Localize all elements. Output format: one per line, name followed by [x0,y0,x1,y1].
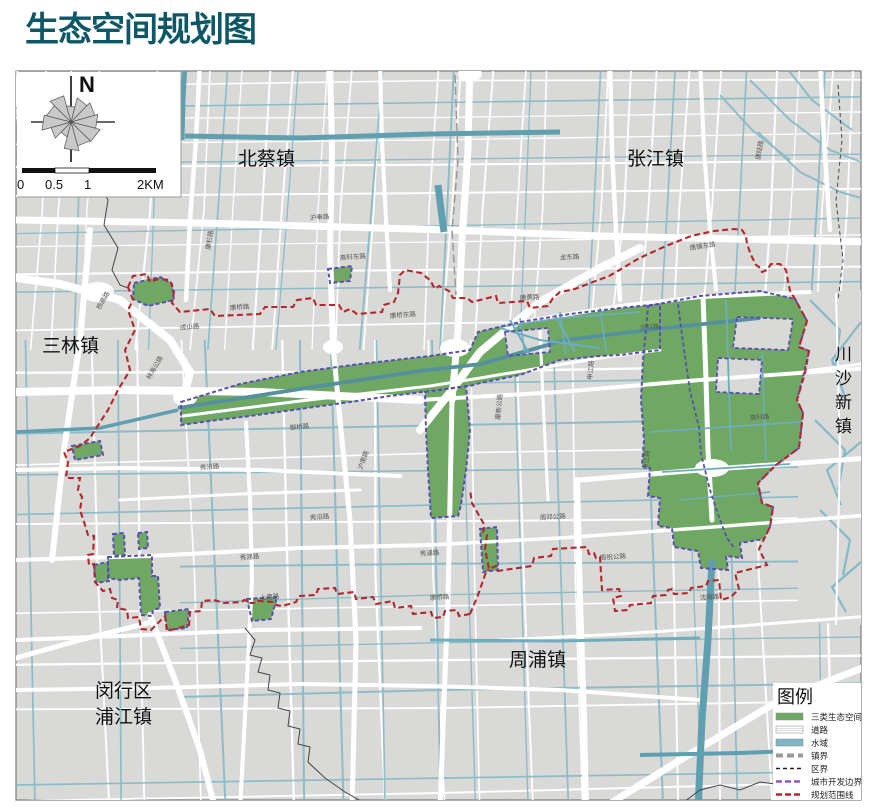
svg-text:沙: 沙 [835,369,852,388]
svg-text:三类生态空间: 三类生态空间 [811,712,862,722]
svg-text:城市开发边界: 城市开发边界 [811,777,863,787]
svg-text:图例: 图例 [777,687,813,707]
svg-text:周浦镇: 周浦镇 [509,649,566,671]
svg-text:0.5: 0.5 [45,177,63,192]
svg-text:道路: 道路 [811,725,829,735]
svg-text:1: 1 [84,177,91,192]
svg-text:镇: 镇 [835,417,852,436]
svg-text:区界: 区界 [811,764,829,774]
svg-text:水域: 水域 [811,738,829,748]
svg-text:2KM: 2KM [137,177,164,192]
svg-text:张江镇: 张江镇 [627,148,684,170]
svg-text:闵行区: 闵行区 [95,680,152,702]
svg-text:0: 0 [17,177,24,192]
svg-text:浦江镇: 浦江镇 [95,706,152,728]
svg-text:规划范围线: 规划范围线 [811,790,854,800]
svg-text:三林镇: 三林镇 [42,335,99,357]
svg-text:镇界: 镇界 [811,751,829,761]
svg-text:川: 川 [835,345,852,364]
svg-text:北蔡镇: 北蔡镇 [238,148,295,170]
svg-text:新: 新 [835,393,852,412]
svg-text:N: N [79,72,95,97]
